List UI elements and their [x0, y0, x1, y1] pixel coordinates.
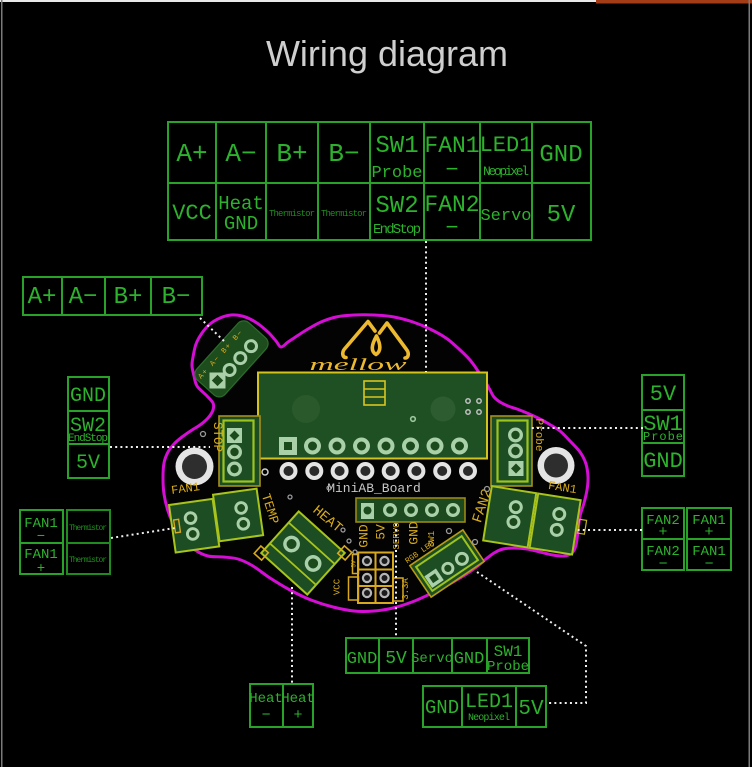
svg-text:+: + — [704, 524, 713, 541]
svg-text:−: − — [658, 556, 667, 573]
svg-text:Thermistor: Thermistor — [321, 209, 367, 219]
svg-text:5V: 5V — [385, 649, 407, 669]
svg-text:Neopixel: Neopixel — [468, 712, 510, 724]
svg-text:GND: GND — [357, 524, 372, 548]
svg-text:SW2: SW2 — [375, 193, 418, 220]
svg-text:B+: B+ — [114, 284, 143, 311]
svg-text:GND: GND — [643, 449, 683, 474]
svg-text:Heat: Heat — [249, 691, 283, 707]
svg-text:5V: 5V — [547, 202, 576, 229]
svg-text:Probe: Probe — [643, 430, 683, 444]
svg-text:GND: GND — [70, 385, 106, 408]
svg-text:−: − — [704, 556, 713, 573]
svg-text:5V: 5V — [76, 452, 100, 475]
svg-text:−: − — [445, 216, 458, 241]
svg-text:GND: GND — [425, 697, 459, 719]
svg-text:+: + — [293, 707, 302, 724]
svg-text:+: + — [37, 561, 45, 577]
svg-text:3.3A: 3.3A — [401, 578, 411, 600]
svg-text:STOP: STOP — [210, 422, 224, 452]
svg-text:Heat: Heat — [281, 691, 315, 707]
svg-text:SW1: SW1 — [375, 133, 418, 160]
svg-text:GND: GND — [407, 521, 422, 545]
svg-text:LED1: LED1 — [480, 133, 533, 158]
svg-text:Probe: Probe — [487, 659, 529, 675]
svg-text:EndStop: EndStop — [68, 433, 108, 445]
svg-text:B+: B+ — [276, 139, 307, 169]
svg-text:−: − — [261, 707, 270, 724]
svg-text:Thermistor: Thermistor — [69, 524, 107, 533]
svg-text:A+: A+ — [176, 139, 207, 169]
svg-text:Servo: Servo — [411, 651, 453, 667]
svg-text:EndStop: EndStop — [373, 222, 421, 238]
svg-text:−: − — [37, 529, 45, 545]
svg-text:GND: GND — [454, 650, 485, 669]
svg-text:MiniAB_Board: MiniAB_Board — [327, 481, 421, 496]
svg-text:−: − — [445, 158, 458, 183]
svg-text:FAN2: FAN2 — [424, 192, 479, 218]
svg-text:mellow: mellow — [310, 355, 407, 374]
svg-text:GND: GND — [347, 650, 378, 669]
svg-text:5V: 5V — [351, 560, 358, 568]
svg-text:Neopixel: Neopixel — [483, 164, 529, 179]
svg-text:FAN1: FAN1 — [424, 133, 479, 159]
svg-text:Servo: Servo — [480, 207, 531, 226]
svg-text:VCC: VCC — [333, 578, 343, 595]
svg-text:Probe: Probe — [532, 418, 544, 451]
svg-text:Wiring diagram: Wiring diagram — [266, 33, 508, 74]
svg-text:5V: 5V — [518, 698, 544, 721]
svg-text:B−: B− — [328, 139, 359, 169]
svg-text:Thermistor: Thermistor — [269, 209, 315, 219]
svg-text:LED1: LED1 — [465, 691, 513, 714]
svg-text:VCC: VCC — [172, 201, 212, 226]
svg-text:Probe: Probe — [371, 164, 422, 183]
svg-text:A−: A− — [225, 139, 256, 169]
svg-text:Thermistor: Thermistor — [69, 556, 107, 565]
svg-text:B−: B− — [162, 284, 191, 311]
svg-text:GND: GND — [539, 142, 582, 169]
svg-text:Heat: Heat — [218, 193, 264, 215]
svg-text:5V: 5V — [374, 524, 389, 540]
svg-text:+: + — [658, 524, 667, 541]
svg-text:A−: A− — [69, 284, 98, 311]
svg-text:5V: 5V — [650, 382, 677, 407]
svg-text:A+: A+ — [28, 284, 57, 311]
svg-text:GND: GND — [224, 213, 258, 235]
